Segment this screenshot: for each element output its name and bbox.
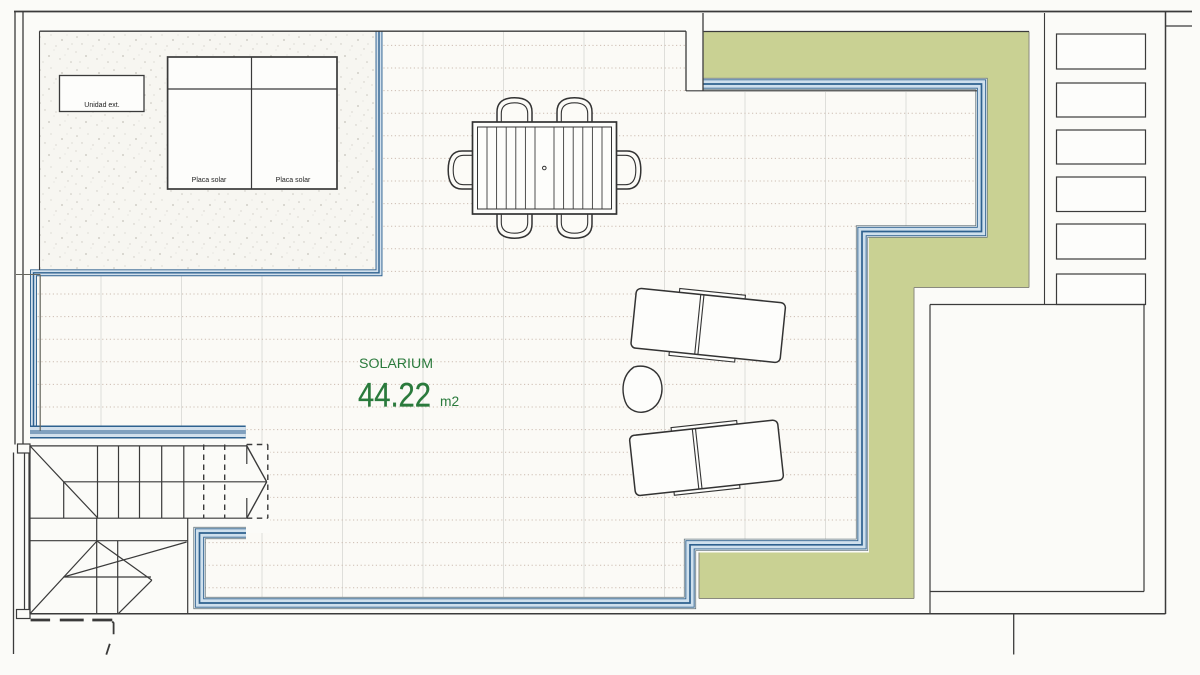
svg-text:SOLARIUM: SOLARIUM xyxy=(359,356,433,371)
svg-text:m2: m2 xyxy=(440,394,459,409)
svg-text:Placa solar: Placa solar xyxy=(192,177,227,184)
svg-text:44.22: 44.22 xyxy=(358,377,431,415)
svg-text:Unidad ext.: Unidad ext. xyxy=(84,102,119,109)
svg-text:Placa solar: Placa solar xyxy=(276,177,311,184)
